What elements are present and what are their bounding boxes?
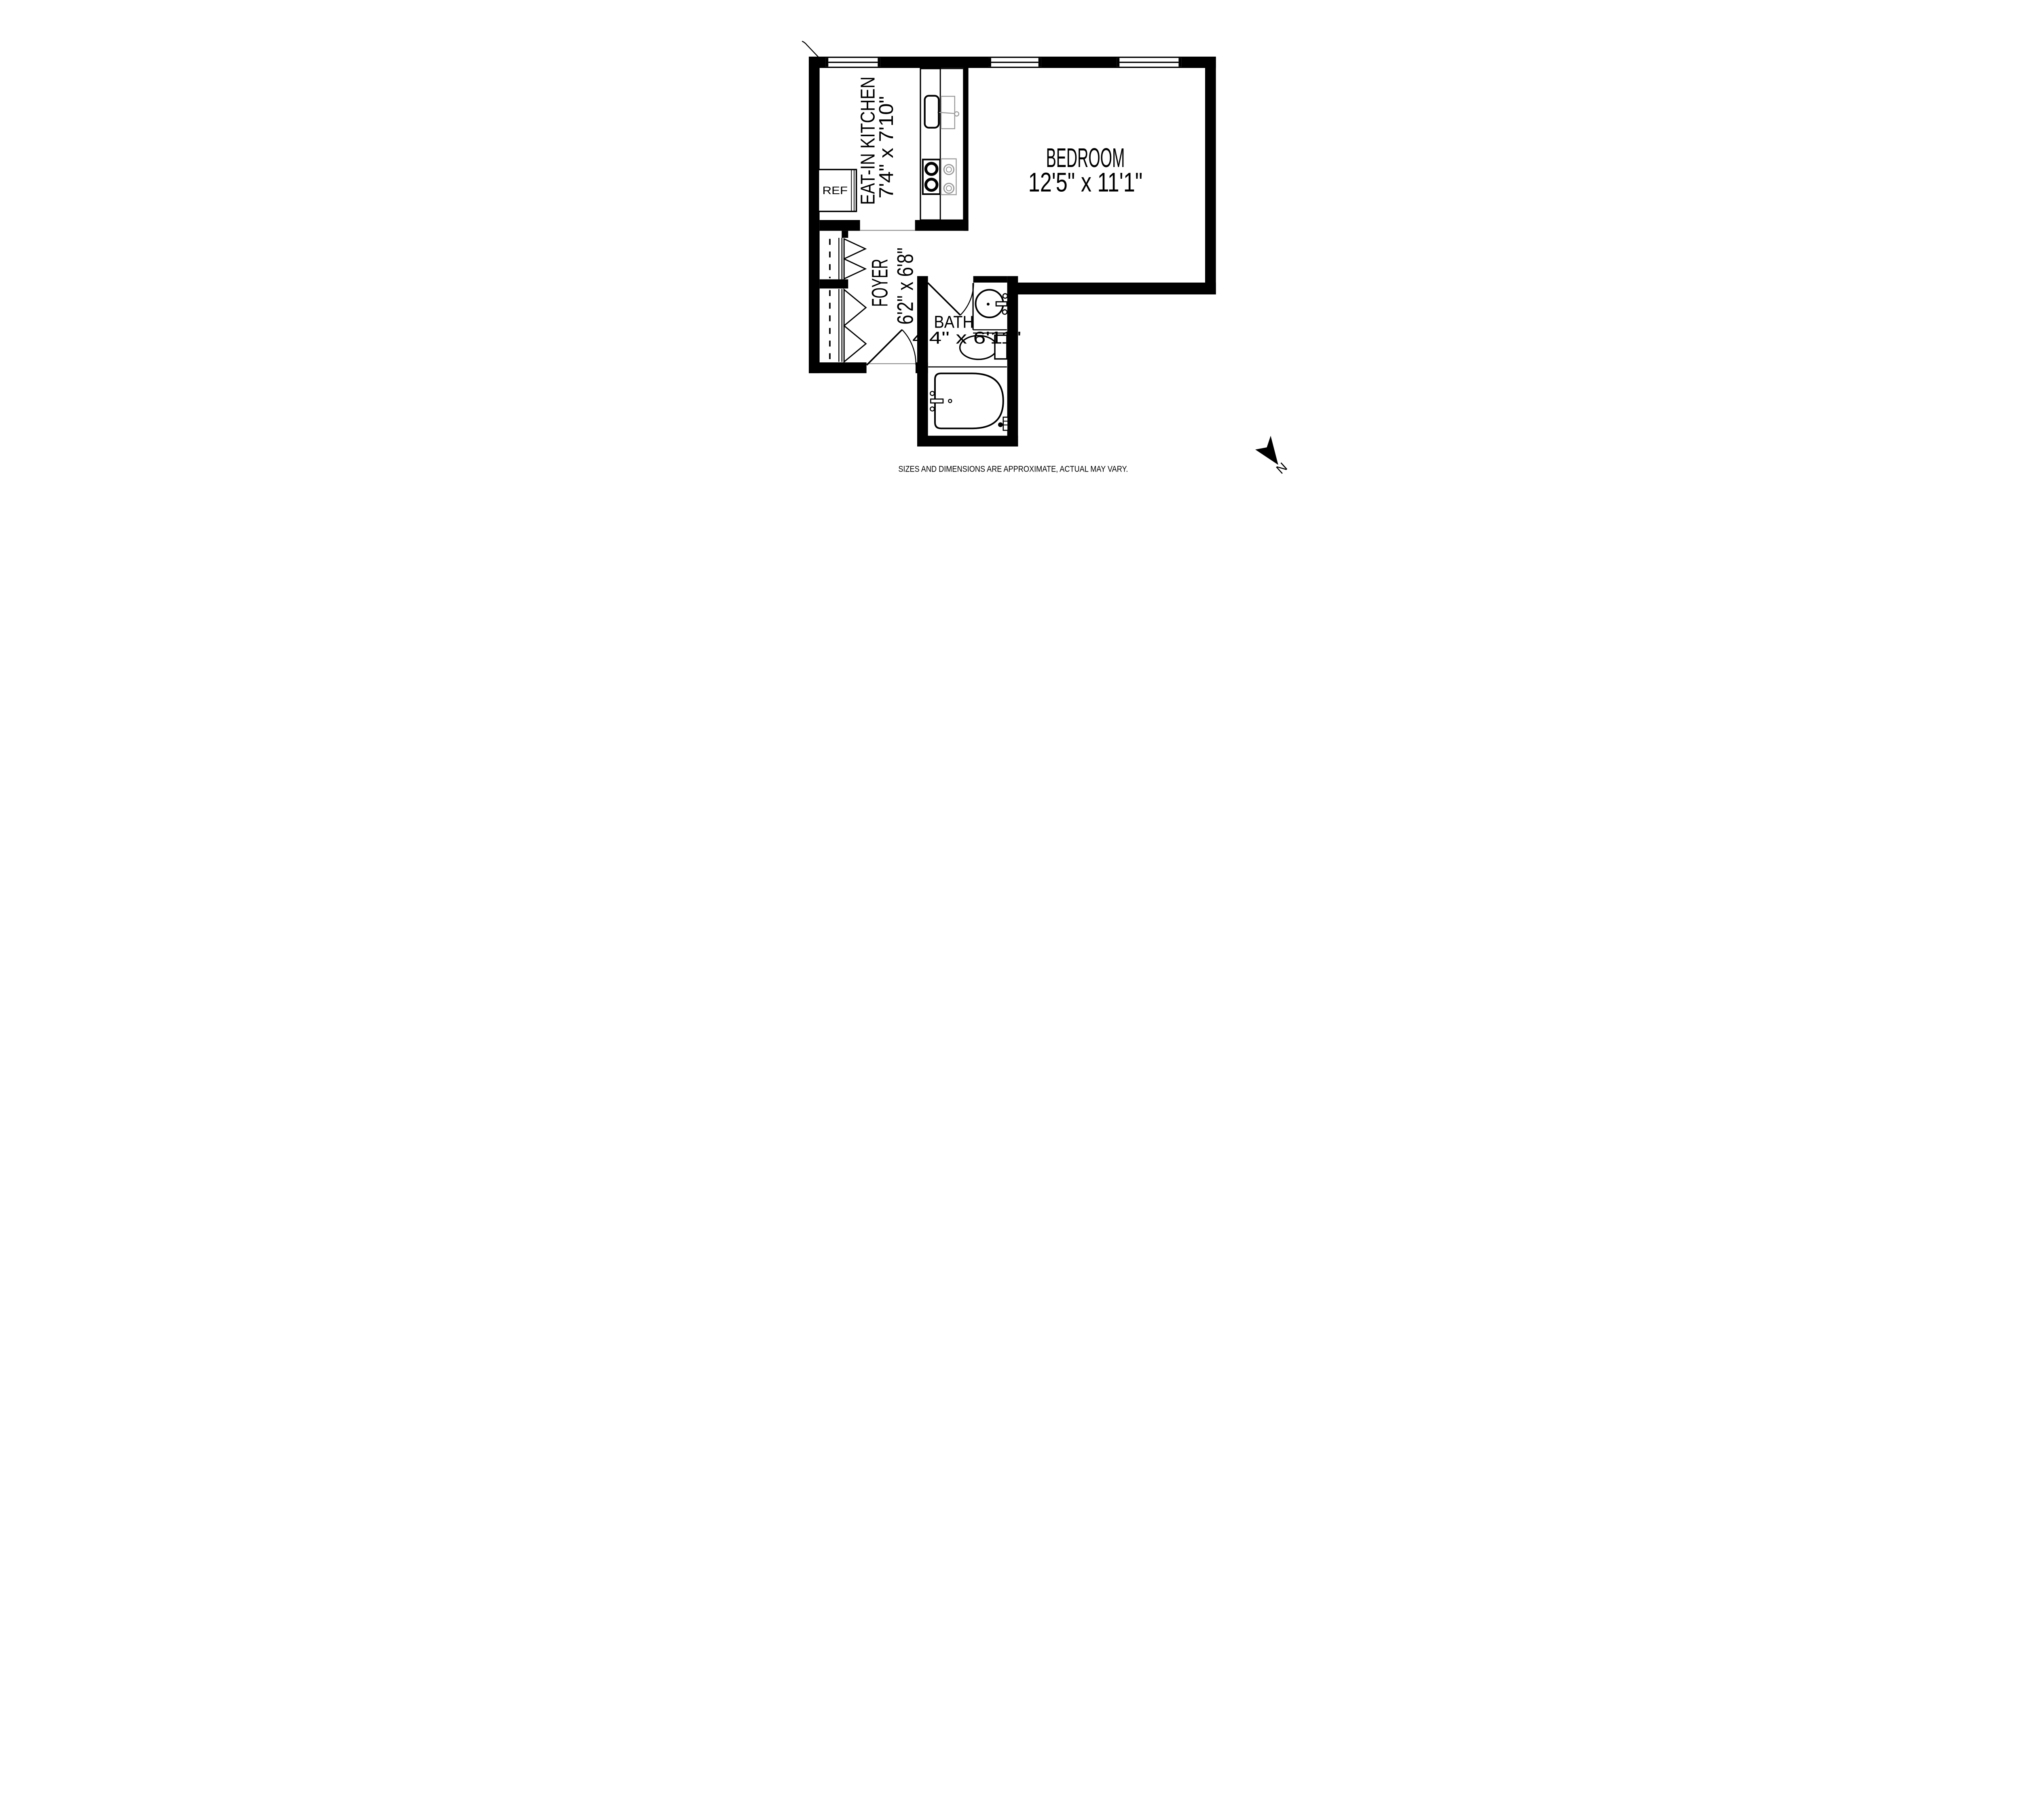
bedroom-window-1: [988, 58, 1041, 67]
bath-door: [928, 283, 973, 315]
closet-upper: [830, 238, 865, 279]
entry-door: [867, 330, 916, 365]
bifold-door-icon: [844, 259, 865, 279]
bedroom-dimensions: 12'5" x 11'1": [1028, 167, 1143, 197]
faucet-icon: [996, 302, 1007, 306]
north-arrow: N: [1255, 436, 1290, 476]
tub-drain-icon: [948, 399, 952, 402]
bath-sink: [976, 290, 1008, 317]
bath-top-wall: [973, 276, 1007, 283]
floorplan-page: REF: [687, 0, 1335, 485]
foyer-dimensions: 6'2" x 6'8": [892, 248, 918, 325]
kitchen-window: [825, 58, 880, 67]
bifold-door-icon: [844, 239, 865, 259]
door-leaf: [928, 283, 960, 315]
bath-bottom-wall: [917, 436, 1018, 447]
door-swing-arc: [960, 283, 974, 315]
counter-left-column: [920, 69, 940, 220]
north-arrow-icon: [1255, 436, 1278, 465]
bedroom-right-wall: [1205, 57, 1216, 294]
door-leaf: [867, 330, 902, 365]
refrigerator: REF: [819, 169, 857, 211]
shower-control: [998, 417, 1008, 430]
foyer-closets: [830, 238, 866, 362]
bedroom-window-2: [1117, 58, 1181, 67]
bifold-door-icon: [844, 326, 866, 362]
bath-left-wall: [917, 276, 928, 447]
kitchen-divider-wall: [964, 68, 969, 231]
kitchen-sink: [925, 96, 940, 128]
kitchen-counter: [920, 69, 964, 220]
left-wall: [809, 57, 820, 373]
kitchen-dimensions: 7'4" x 7'10": [875, 96, 897, 198]
counter-right-column: [940, 69, 963, 220]
corner-leader-line: [802, 41, 820, 59]
bathtub: [930, 373, 1003, 428]
bath-dimensions: 4'4" x 6'11": [912, 328, 1021, 347]
bath-right-wall: [1007, 276, 1018, 447]
kitchen-south-wall-left: [820, 220, 860, 231]
closet-lower: [830, 289, 866, 362]
bifold-door-icon: [844, 290, 866, 326]
windows: [825, 58, 1181, 67]
disclaimer-text: SIZES AND DIMENSIONS ARE APPROXIMATE, AC…: [898, 465, 1128, 474]
foyer-bottom-wall: [809, 362, 867, 373]
refrigerator-label: REF: [822, 184, 848, 197]
closet-top-jamb: [842, 231, 848, 238]
kitchen-south-wall-right: [915, 220, 969, 231]
tub-faucet-icon: [931, 399, 943, 403]
bedroom-bottom-wall: [1007, 283, 1216, 294]
floorplan-canvas: REF: [687, 0, 1335, 485]
closet-stub-wall: [820, 279, 848, 289]
foyer-label: FOYER: [867, 259, 893, 307]
